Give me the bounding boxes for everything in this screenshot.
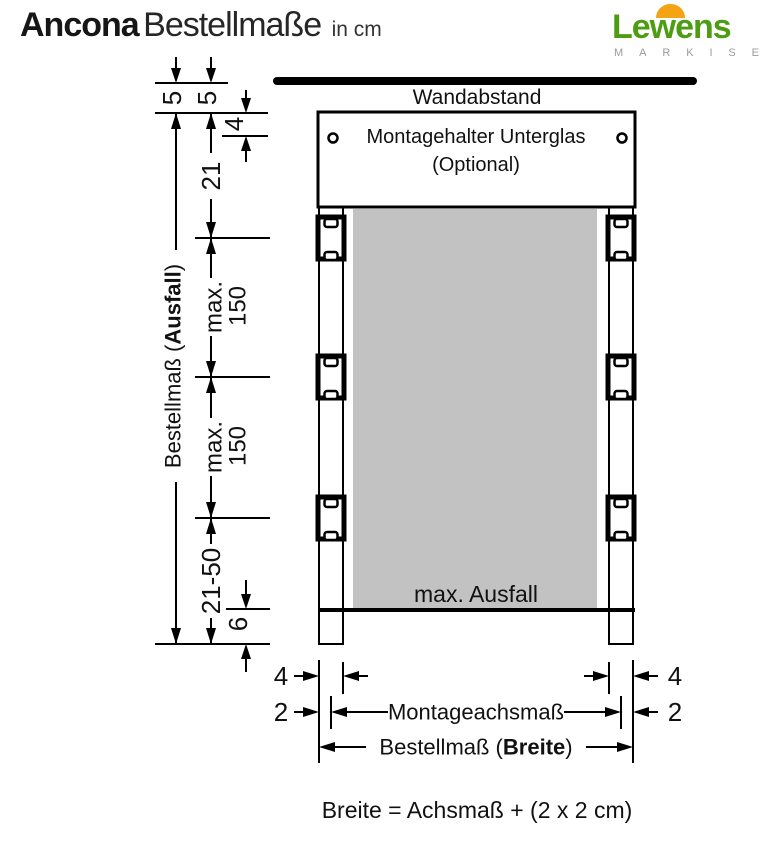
dim-rail-width-right: 4 [668,661,682,691]
dim-order-width-label: Bestellmaß (Breite) [379,735,572,760]
dim-top-bracket-distance: 21 [196,162,226,191]
order-width-pre: Bestellmaß ( [379,735,503,760]
right-screw-hole-icon [618,134,627,143]
order-width-post: ) [565,735,572,760]
dim-rail-width-left: 4 [274,661,288,691]
dim-axis-width-label: Montageachsmaß [388,700,564,725]
total-height-pre: Bestellmaß ( [161,344,186,468]
dim-total-height-label: Bestellmaß (Ausfall) [161,264,186,468]
right-rail [609,207,633,644]
order-width-bold: Breite [503,735,565,760]
mounting-bracket [608,356,634,399]
max-ausfall-label: max. Ausfall [414,581,538,607]
left-screw-hole-icon [329,134,338,143]
dim-glass-offset: 4 [219,117,249,131]
dim-edge-offset-left: 2 [274,697,288,727]
total-height-bold: Ausfall [161,271,186,344]
dim-spacing2-prefix: max. [200,421,227,473]
dim-wall-gap-outer: 5 [157,91,187,105]
dim-foot-height: 6 [223,617,253,631]
left-rail [319,207,343,644]
mounting-box-optional-label: (Optional) [432,154,520,176]
mounting-box-label: Montagehalter Unterglas [366,126,585,148]
wall-distance-label: Wandabstand [413,86,542,109]
dim-spacing1-prefix: max. [200,281,227,333]
dim-spacing1-value: 150 [224,286,251,326]
dim-wall-gap-inner: 5 [192,91,222,105]
fabric-area [353,209,597,609]
dim-bottom-range: 21-50 [196,548,226,615]
technical-drawing: Wandabstand max. Ausfall Montagehalter U… [0,0,768,843]
mounting-bracket [318,497,344,540]
width-formula: Breite = Achsmaß + (2 x 2 cm) [322,797,633,823]
dim-spacing2-value: 150 [224,426,251,466]
mounting-bracket [608,497,634,540]
total-height-post: ) [161,264,186,271]
dim-edge-offset-right: 2 [668,697,682,727]
mounting-bracket [318,356,344,399]
mounting-bracket [318,217,344,260]
logo-name: Lewens [612,10,762,44]
mounting-bracket [608,217,634,260]
mounting-box: Montagehalter Unterglas (Optional) [318,112,635,207]
